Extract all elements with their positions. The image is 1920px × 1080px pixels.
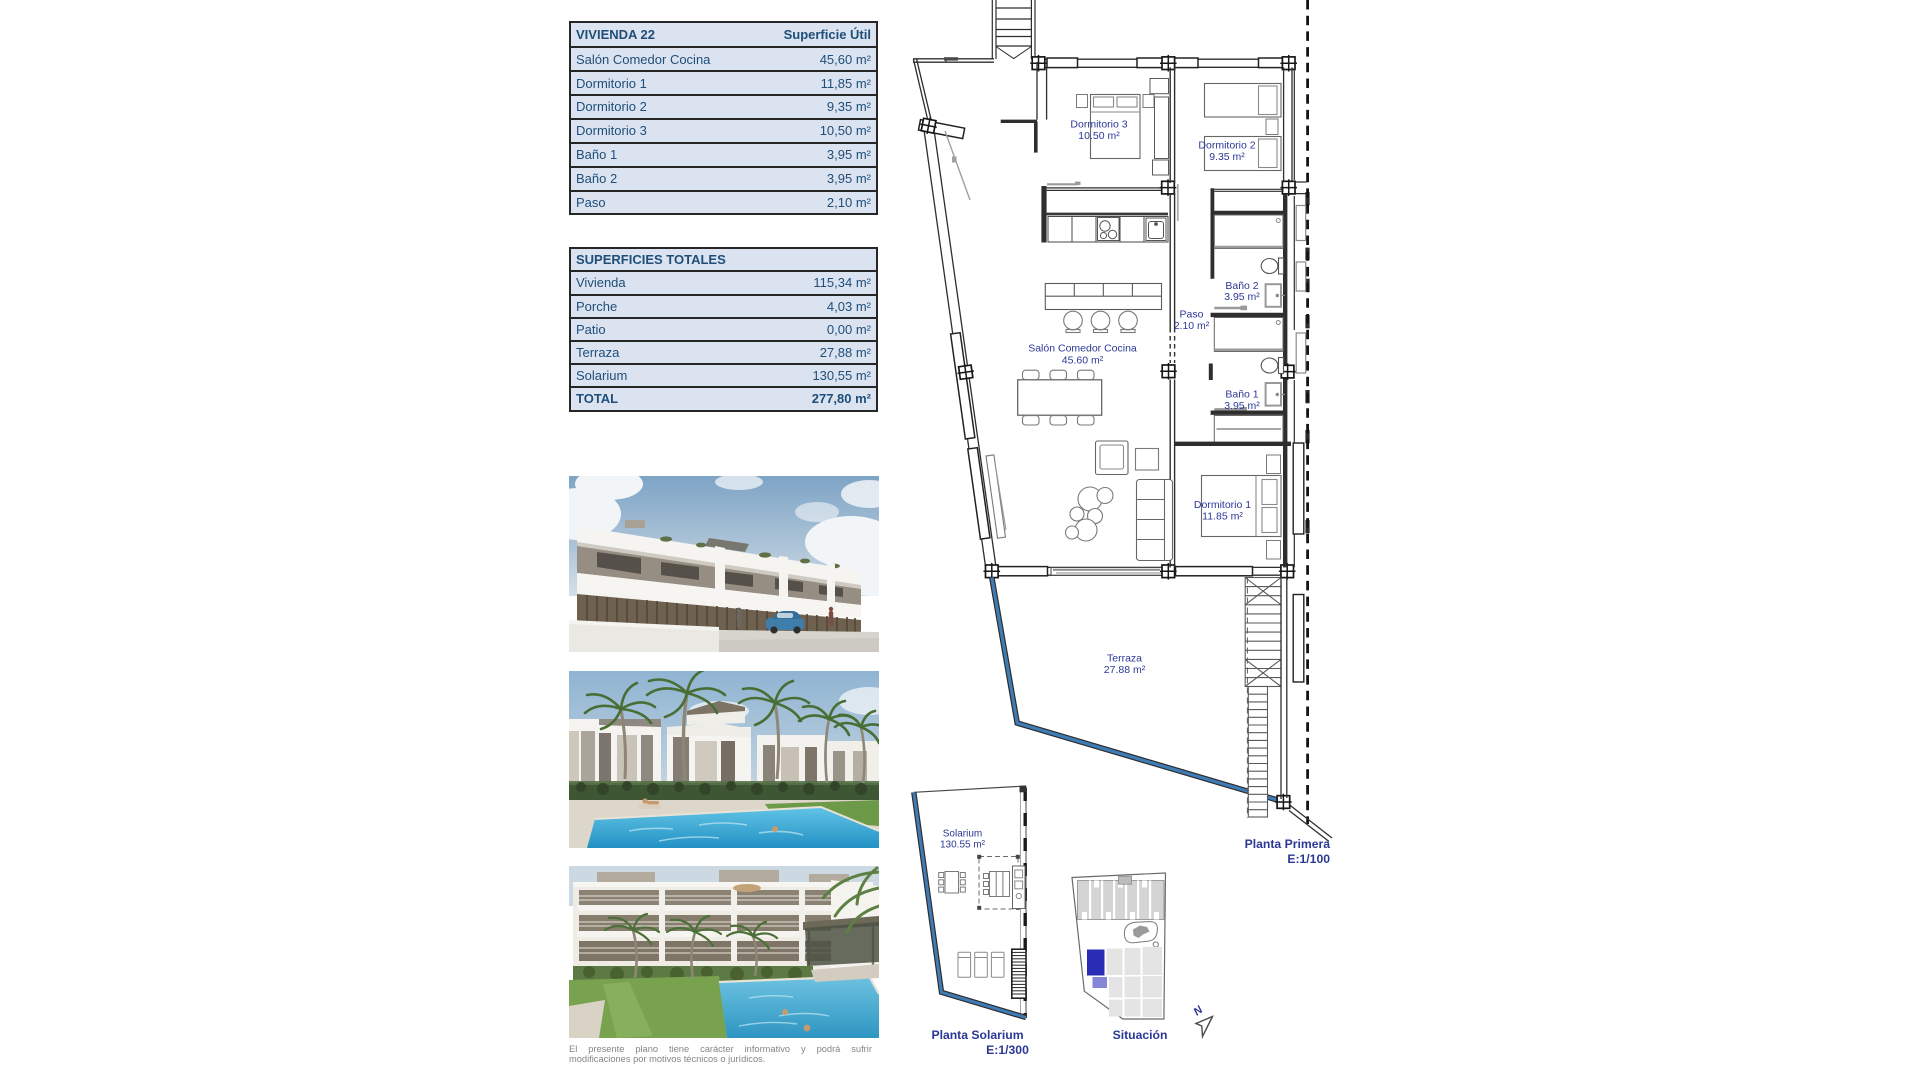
svg-text:10.50 m²: 10.50 m²	[1078, 130, 1120, 142]
svg-text:11.85 m²: 11.85 m²	[1202, 511, 1243, 523]
svg-text:130.55 m²: 130.55 m²	[940, 840, 986, 851]
svg-text:Terraza: Terraza	[1107, 653, 1142, 665]
svg-text:Solarium: Solarium	[943, 829, 982, 840]
svg-text:Dormitorio 2: Dormitorio 2	[1198, 140, 1255, 152]
svg-text:9.35 m²: 9.35 m²	[1209, 151, 1245, 163]
svg-text:Dormitorio 1: Dormitorio 1	[1194, 499, 1251, 511]
svg-text:3.95 m²: 3.95 m²	[1224, 291, 1260, 303]
svg-text:27.88 m²: 27.88 m²	[1104, 664, 1146, 676]
svg-text:Dormitorio 3: Dormitorio 3	[1070, 119, 1127, 131]
svg-text:45.60 m²: 45.60 m²	[1062, 355, 1104, 367]
svg-text:Paso: Paso	[1180, 309, 1204, 321]
svg-text:2.10 m²: 2.10 m²	[1174, 320, 1210, 332]
svg-text:3.95 m²: 3.95 m²	[1224, 400, 1260, 412]
svg-text:Baño 1: Baño 1	[1225, 389, 1258, 401]
svg-text:N: N	[1191, 1003, 1205, 1018]
svg-text:Salón Comedor Cocina: Salón Comedor Cocina	[1028, 343, 1137, 355]
